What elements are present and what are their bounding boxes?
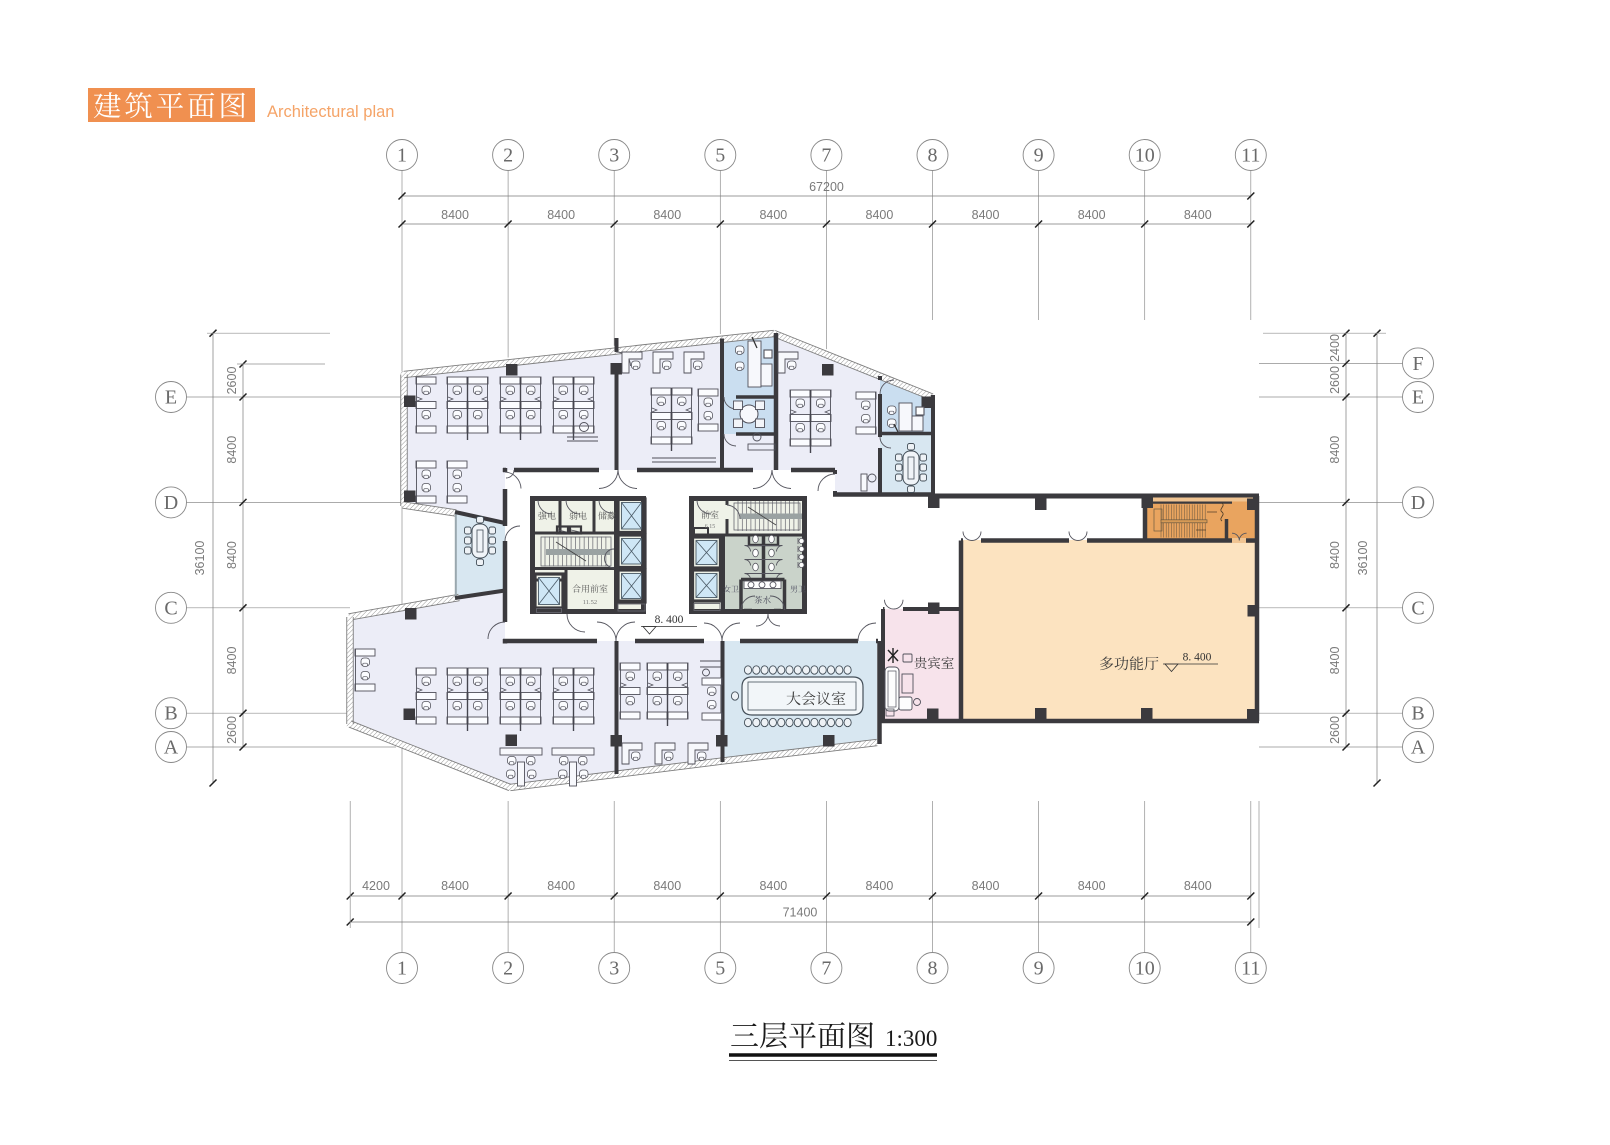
svg-text:36100: 36100 [193, 541, 207, 576]
svg-text:8400: 8400 [1328, 541, 1342, 569]
svg-text:8400: 8400 [225, 436, 239, 464]
svg-text:7: 7 [821, 145, 831, 167]
svg-text:2600: 2600 [225, 367, 239, 395]
svg-text:B: B [164, 703, 177, 725]
svg-text:2600: 2600 [1328, 366, 1342, 394]
svg-text:10: 10 [1135, 145, 1155, 167]
svg-text:C: C [1411, 597, 1424, 619]
svg-text:11: 11 [1241, 145, 1260, 167]
svg-text:8400: 8400 [972, 208, 1000, 222]
svg-text:8400: 8400 [1184, 208, 1212, 222]
svg-text:C: C [164, 597, 177, 619]
svg-text:4200: 4200 [362, 879, 390, 893]
svg-text:8400: 8400 [547, 208, 575, 222]
svg-text:8400: 8400 [1328, 436, 1342, 464]
svg-text:5: 5 [715, 145, 725, 167]
svg-text:D: D [1411, 492, 1425, 514]
svg-text:E: E [165, 387, 177, 409]
svg-text:8400: 8400 [759, 879, 787, 893]
svg-text:8400: 8400 [866, 208, 894, 222]
svg-text:3: 3 [609, 958, 619, 980]
svg-text:8. 400: 8. 400 [1183, 652, 1212, 664]
svg-text:8400: 8400 [653, 879, 681, 893]
svg-text:8400: 8400 [1078, 208, 1106, 222]
svg-text:5: 5 [715, 958, 725, 980]
svg-text:8400: 8400 [225, 647, 239, 675]
svg-text:3: 3 [609, 145, 619, 167]
svg-text:9: 9 [1034, 145, 1044, 167]
svg-text:1: 1 [397, 958, 407, 980]
svg-text:8400: 8400 [972, 879, 1000, 893]
svg-text:Architectural plan: Architectural plan [267, 103, 394, 121]
svg-text:67200: 67200 [809, 180, 844, 194]
svg-text:A: A [1411, 737, 1426, 759]
svg-text:11: 11 [1241, 958, 1260, 980]
svg-text:8. 400: 8. 400 [655, 614, 684, 626]
svg-text:A: A [164, 737, 179, 759]
svg-text:8400: 8400 [441, 208, 469, 222]
svg-text:8400: 8400 [1184, 879, 1212, 893]
svg-text:1:300: 1:300 [885, 1026, 937, 1051]
svg-text:8: 8 [928, 958, 938, 980]
svg-text:1: 1 [397, 145, 407, 167]
svg-text:8400: 8400 [866, 879, 894, 893]
svg-text:2600: 2600 [1328, 716, 1342, 744]
svg-text:9: 9 [1034, 958, 1044, 980]
svg-text:6.15: 6.15 [705, 524, 716, 530]
svg-text:8400: 8400 [1078, 879, 1106, 893]
svg-text:8400: 8400 [441, 879, 469, 893]
svg-text:2600: 2600 [225, 716, 239, 744]
svg-text:8: 8 [928, 145, 938, 167]
svg-text:F: F [1412, 353, 1423, 375]
svg-text:B: B [1411, 703, 1424, 725]
svg-text:8400: 8400 [547, 879, 575, 893]
svg-text:11.52: 11.52 [583, 599, 597, 606]
svg-text:2400: 2400 [1328, 334, 1342, 362]
svg-text:E: E [1412, 387, 1424, 409]
svg-text:2: 2 [503, 958, 513, 980]
svg-text:8400: 8400 [653, 208, 681, 222]
svg-text:71400: 71400 [783, 906, 818, 920]
svg-text:8400: 8400 [759, 208, 787, 222]
svg-text:8400: 8400 [225, 541, 239, 569]
svg-text:2: 2 [503, 145, 513, 167]
svg-text:8400: 8400 [1328, 647, 1342, 675]
svg-text:D: D [164, 492, 178, 514]
svg-text:7: 7 [821, 958, 831, 980]
svg-text:10: 10 [1135, 958, 1155, 980]
svg-text:36100: 36100 [1356, 541, 1370, 576]
